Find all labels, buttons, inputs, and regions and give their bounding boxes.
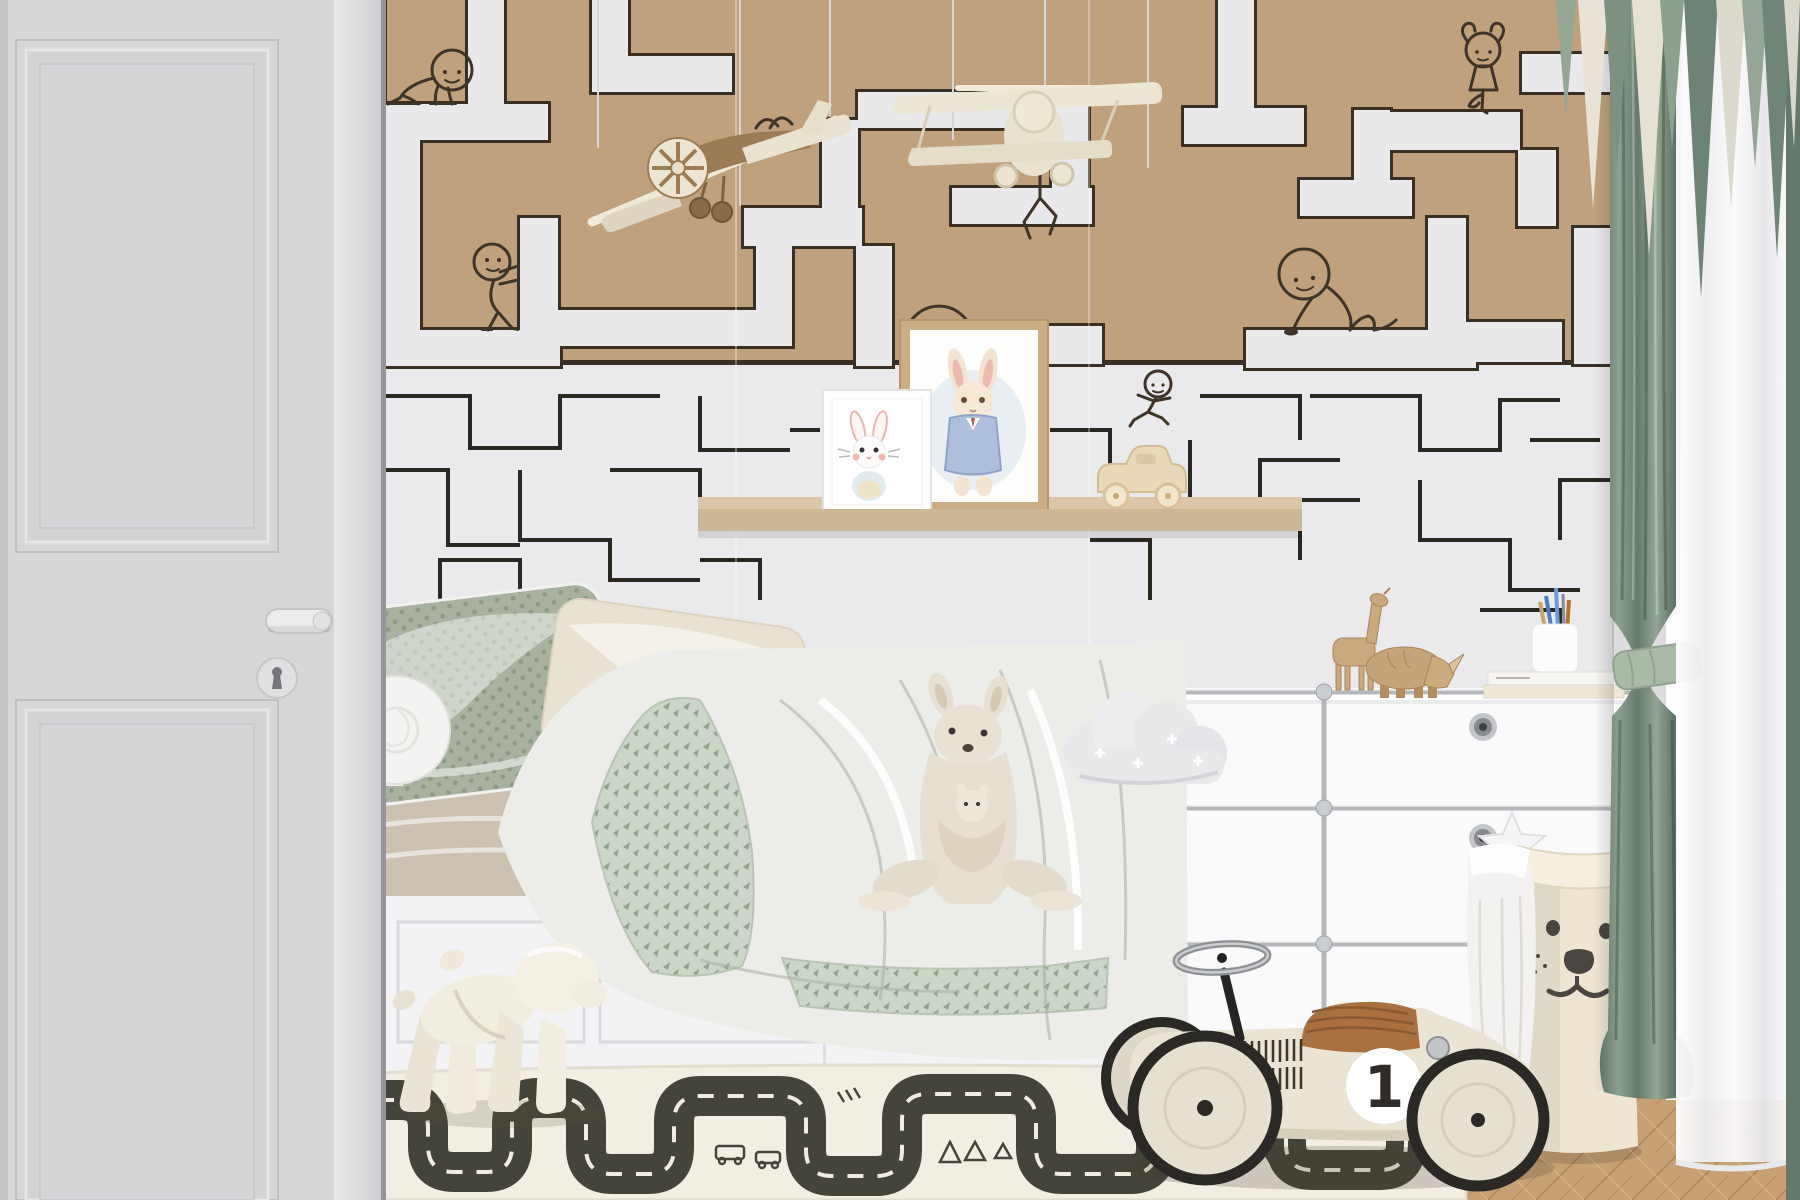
door xyxy=(0,0,386,1200)
propeller-disc xyxy=(648,138,708,198)
door-edge xyxy=(334,0,384,1200)
scene-canvas: 1 xyxy=(0,0,1800,1200)
door-handle xyxy=(266,609,332,633)
small-bunny-print xyxy=(823,390,931,514)
bedroom-scene: 1 xyxy=(0,0,1800,1200)
fuel-cap xyxy=(1427,1037,1449,1059)
race-car-number: 1 xyxy=(1364,1053,1404,1121)
door-keyhole xyxy=(257,658,297,698)
shelf-front xyxy=(698,509,1302,531)
green-curtain-right-edge xyxy=(1786,0,1800,1200)
door-lower-panel xyxy=(16,700,278,1200)
door-upper-panel xyxy=(16,40,278,552)
drawer-knob xyxy=(1469,713,1497,741)
